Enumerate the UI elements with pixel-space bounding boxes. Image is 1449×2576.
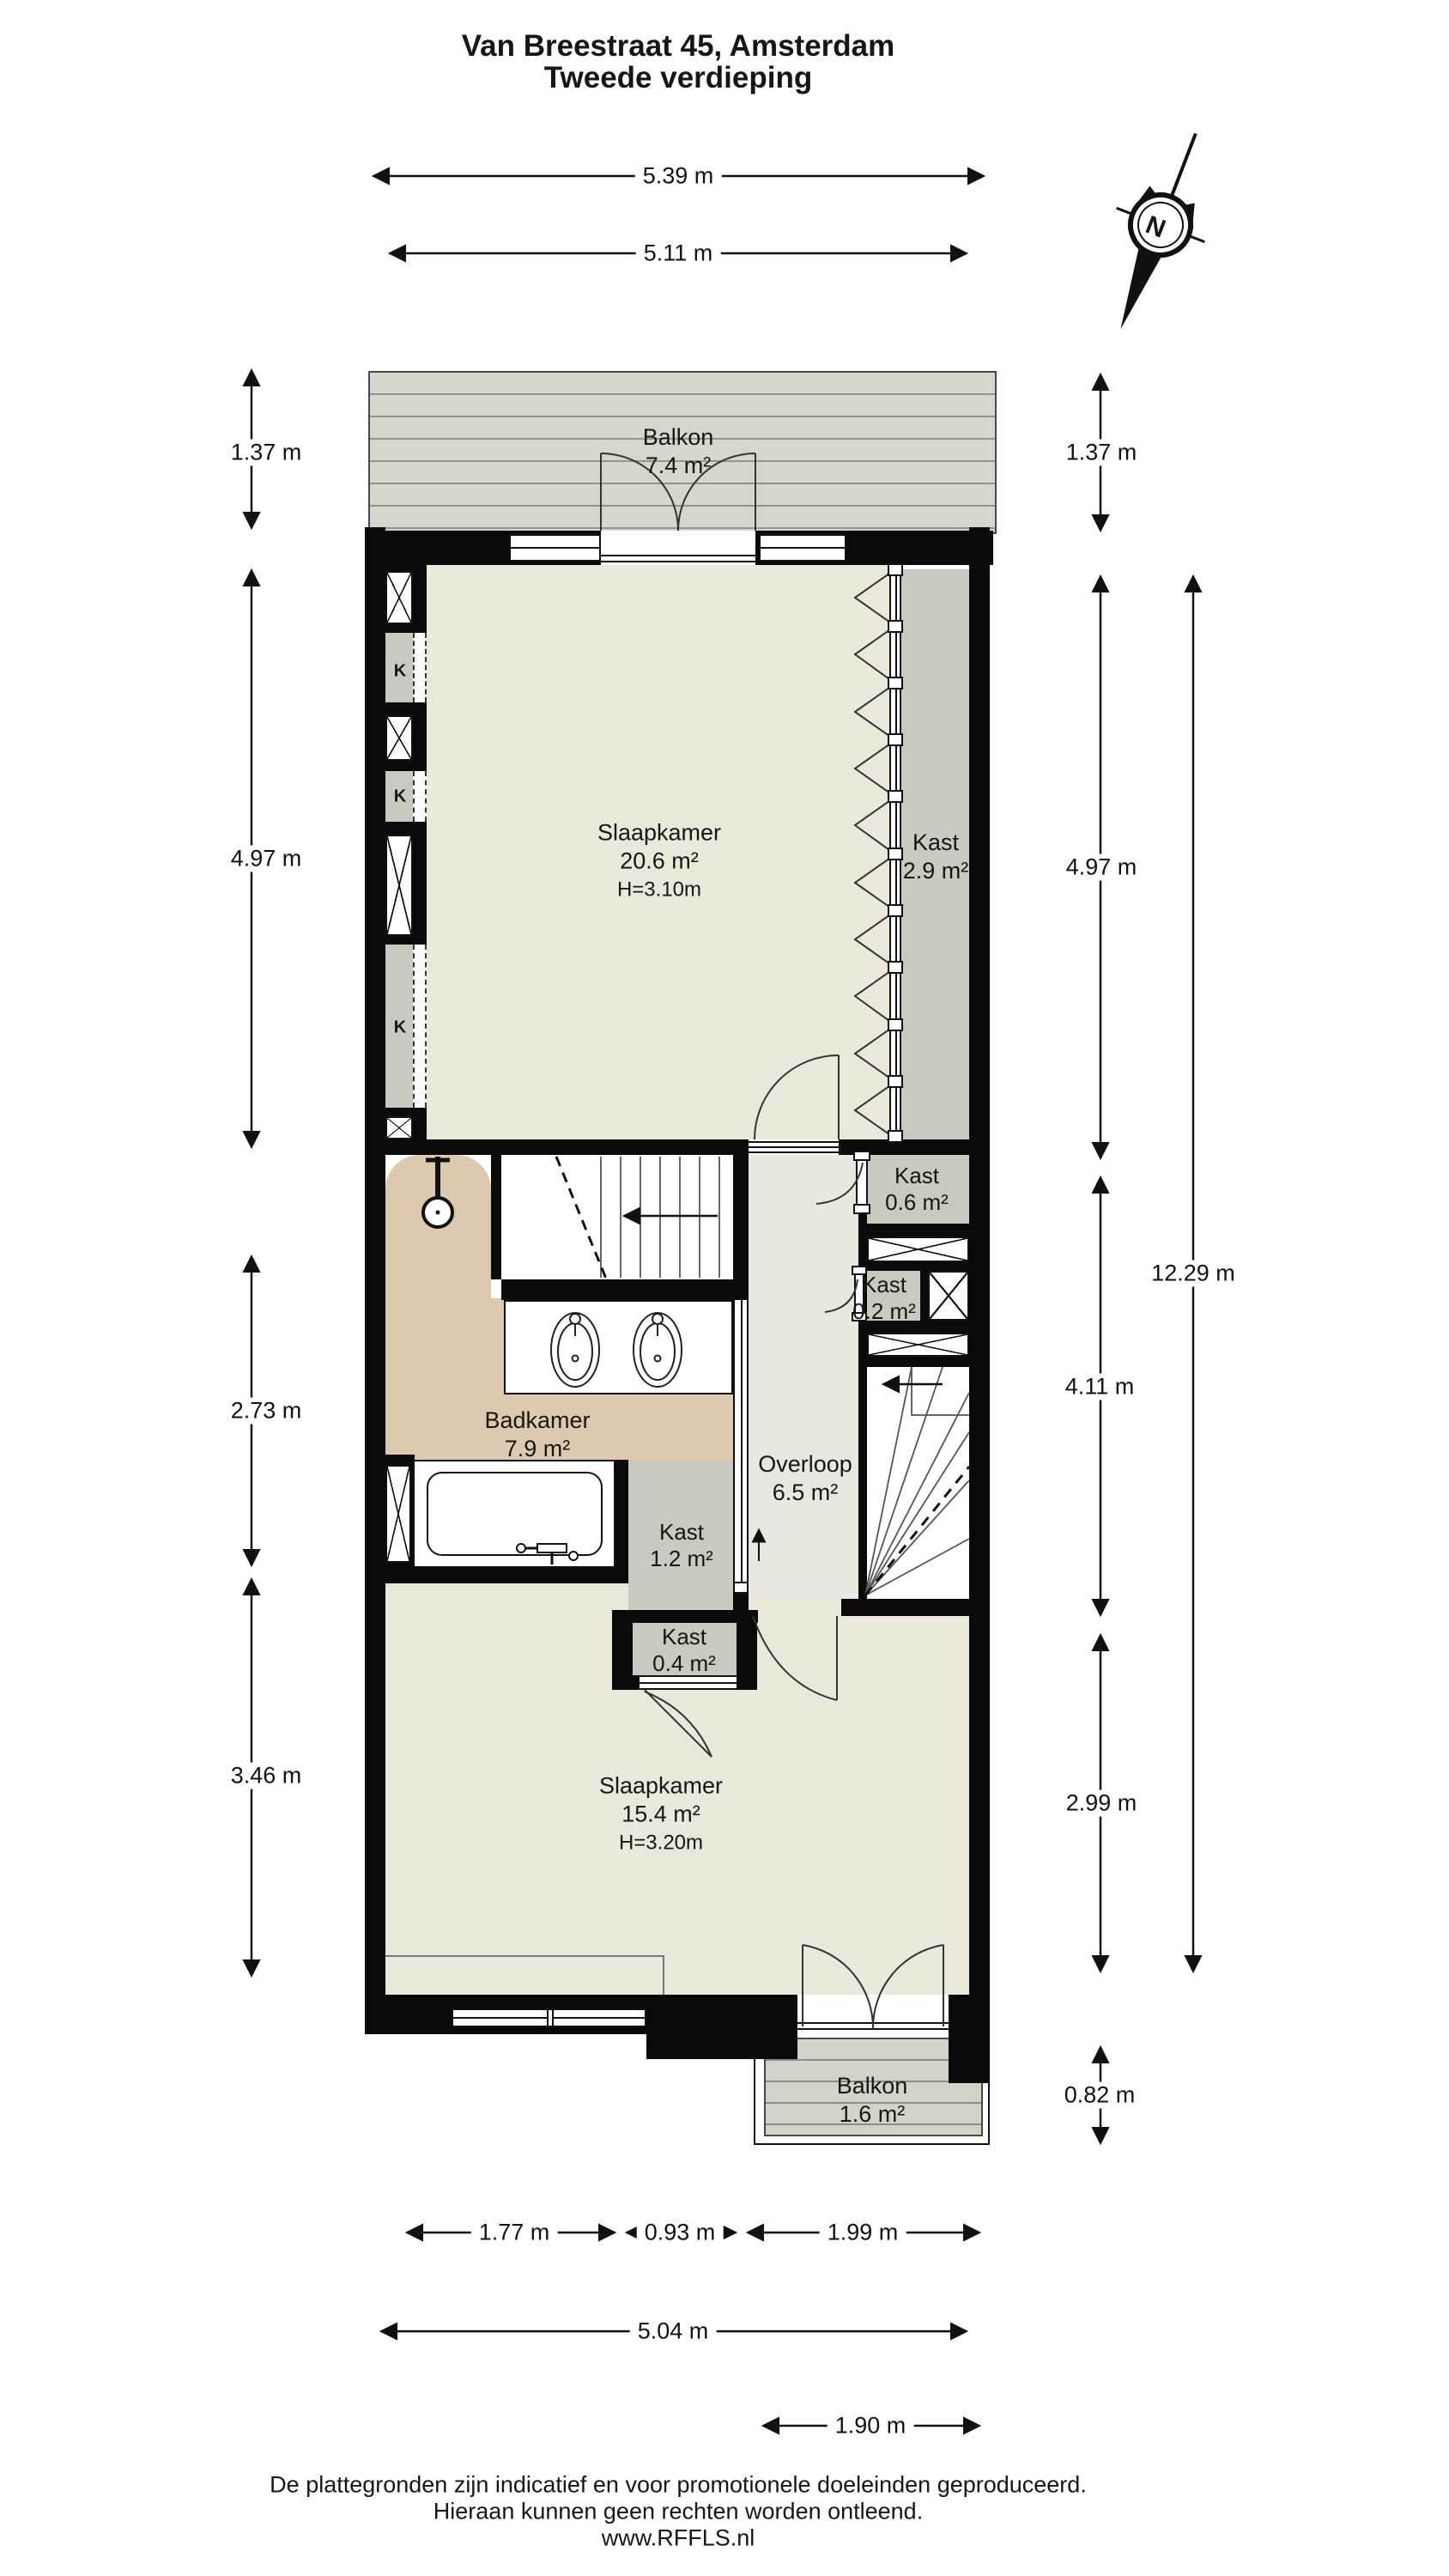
stairs-upper-treads: [601, 1157, 719, 1278]
dim-left-2: 4.97 m: [223, 846, 310, 872]
dim-right-3: 4.11 m: [1058, 1374, 1143, 1400]
room-label-overloop: Overloop 6.5 m²: [758, 1450, 852, 1507]
room-label-slaapkamer2: Slaapkamer 15.4 m² H=3.20m: [599, 1772, 723, 1857]
room-label-balkon-bottom: Balkon 1.6 m²: [837, 2072, 908, 2129]
room-label-slaapkamer1: Slaapkamer 20.6 m² H=3.10m: [597, 819, 721, 904]
stairs-lower-cutline: [865, 1467, 969, 1595]
dim-right-4: 2.99 m: [1058, 1790, 1145, 1817]
bedroom2-bay-line: [385, 1956, 664, 1995]
dim-top-outer: 5.39 m: [635, 163, 722, 190]
page-title: Van Breestraat 45, Amsterdam Tweede verd…: [462, 30, 895, 94]
footer-line3: www.RFFLS.nl: [270, 2525, 1087, 2552]
stairs-upper-cutline: [556, 1157, 606, 1279]
shower-head-icon: [423, 1157, 452, 1227]
room-label-balkon-top: Balkon 7.4 m²: [643, 423, 714, 480]
footer-line1: De plattegronden zijn indicatief en voor…: [270, 2472, 1087, 2499]
dim-right-2: 4.97 m: [1058, 854, 1145, 881]
dim-left-1: 1.37 m: [223, 440, 310, 466]
floorplan-page: Van Breestraat 45, Amsterdam Tweede verd…: [0, 0, 1449, 2576]
sink-right-icon: [634, 1313, 682, 1387]
footer-disclaimer: De plattegronden zijn indicatief en voor…: [270, 2472, 1087, 2552]
dim-bottom-5: 1.90 m: [828, 2413, 914, 2439]
room-label-kast04: Kast 0.4 m²: [652, 1624, 716, 1677]
sink-left-icon: [551, 1313, 599, 1387]
dim-right-total: 12.29 m: [1143, 1261, 1243, 1287]
linework-layer: [0, 0, 1449, 2576]
room-label-badkamer: Badkamer 7.9 m²: [484, 1406, 590, 1463]
footer-line2: Hieraan kunnen geen rechten worden ontle…: [270, 2499, 1087, 2525]
dim-left-3: 2.73 m: [223, 1398, 310, 1425]
stairs-lower-treads: [865, 1367, 969, 1595]
bathtub-faucet-icon: [517, 1544, 578, 1564]
dim-left-4: 3.46 m: [223, 1763, 310, 1789]
room-label-kast29: Kast 2.9 m²: [903, 829, 969, 885]
dim-top-inner: 5.11 m: [636, 240, 721, 267]
title-line1: Van Breestraat 45, Amsterdam: [462, 30, 895, 62]
dim-bottom-4: 5.04 m: [630, 2318, 717, 2345]
dim-bottom-2: 0.93 m: [637, 2220, 724, 2246]
dimension-lines: [252, 176, 1193, 2426]
closet-2-9-hinges: [888, 564, 902, 1142]
dim-bottom-1: 1.77 m: [471, 2220, 558, 2246]
dim-bottom-3: 1.99 m: [820, 2220, 906, 2246]
k-label-1: K: [394, 662, 406, 682]
k-label-3: K: [394, 1018, 406, 1038]
room-label-kast06: Kast 0.6 m²: [885, 1163, 949, 1216]
dim-right-5: 0.82 m: [1057, 2082, 1143, 2109]
room-label-kast12: Kast 1.2 m²: [650, 1519, 713, 1572]
k-label-2: K: [394, 787, 406, 807]
dim-right-1: 1.37 m: [1058, 440, 1145, 466]
title-line2: Tweede verdieping: [462, 62, 895, 94]
room-label-kast02: Kast 0.2 m²: [852, 1272, 916, 1325]
